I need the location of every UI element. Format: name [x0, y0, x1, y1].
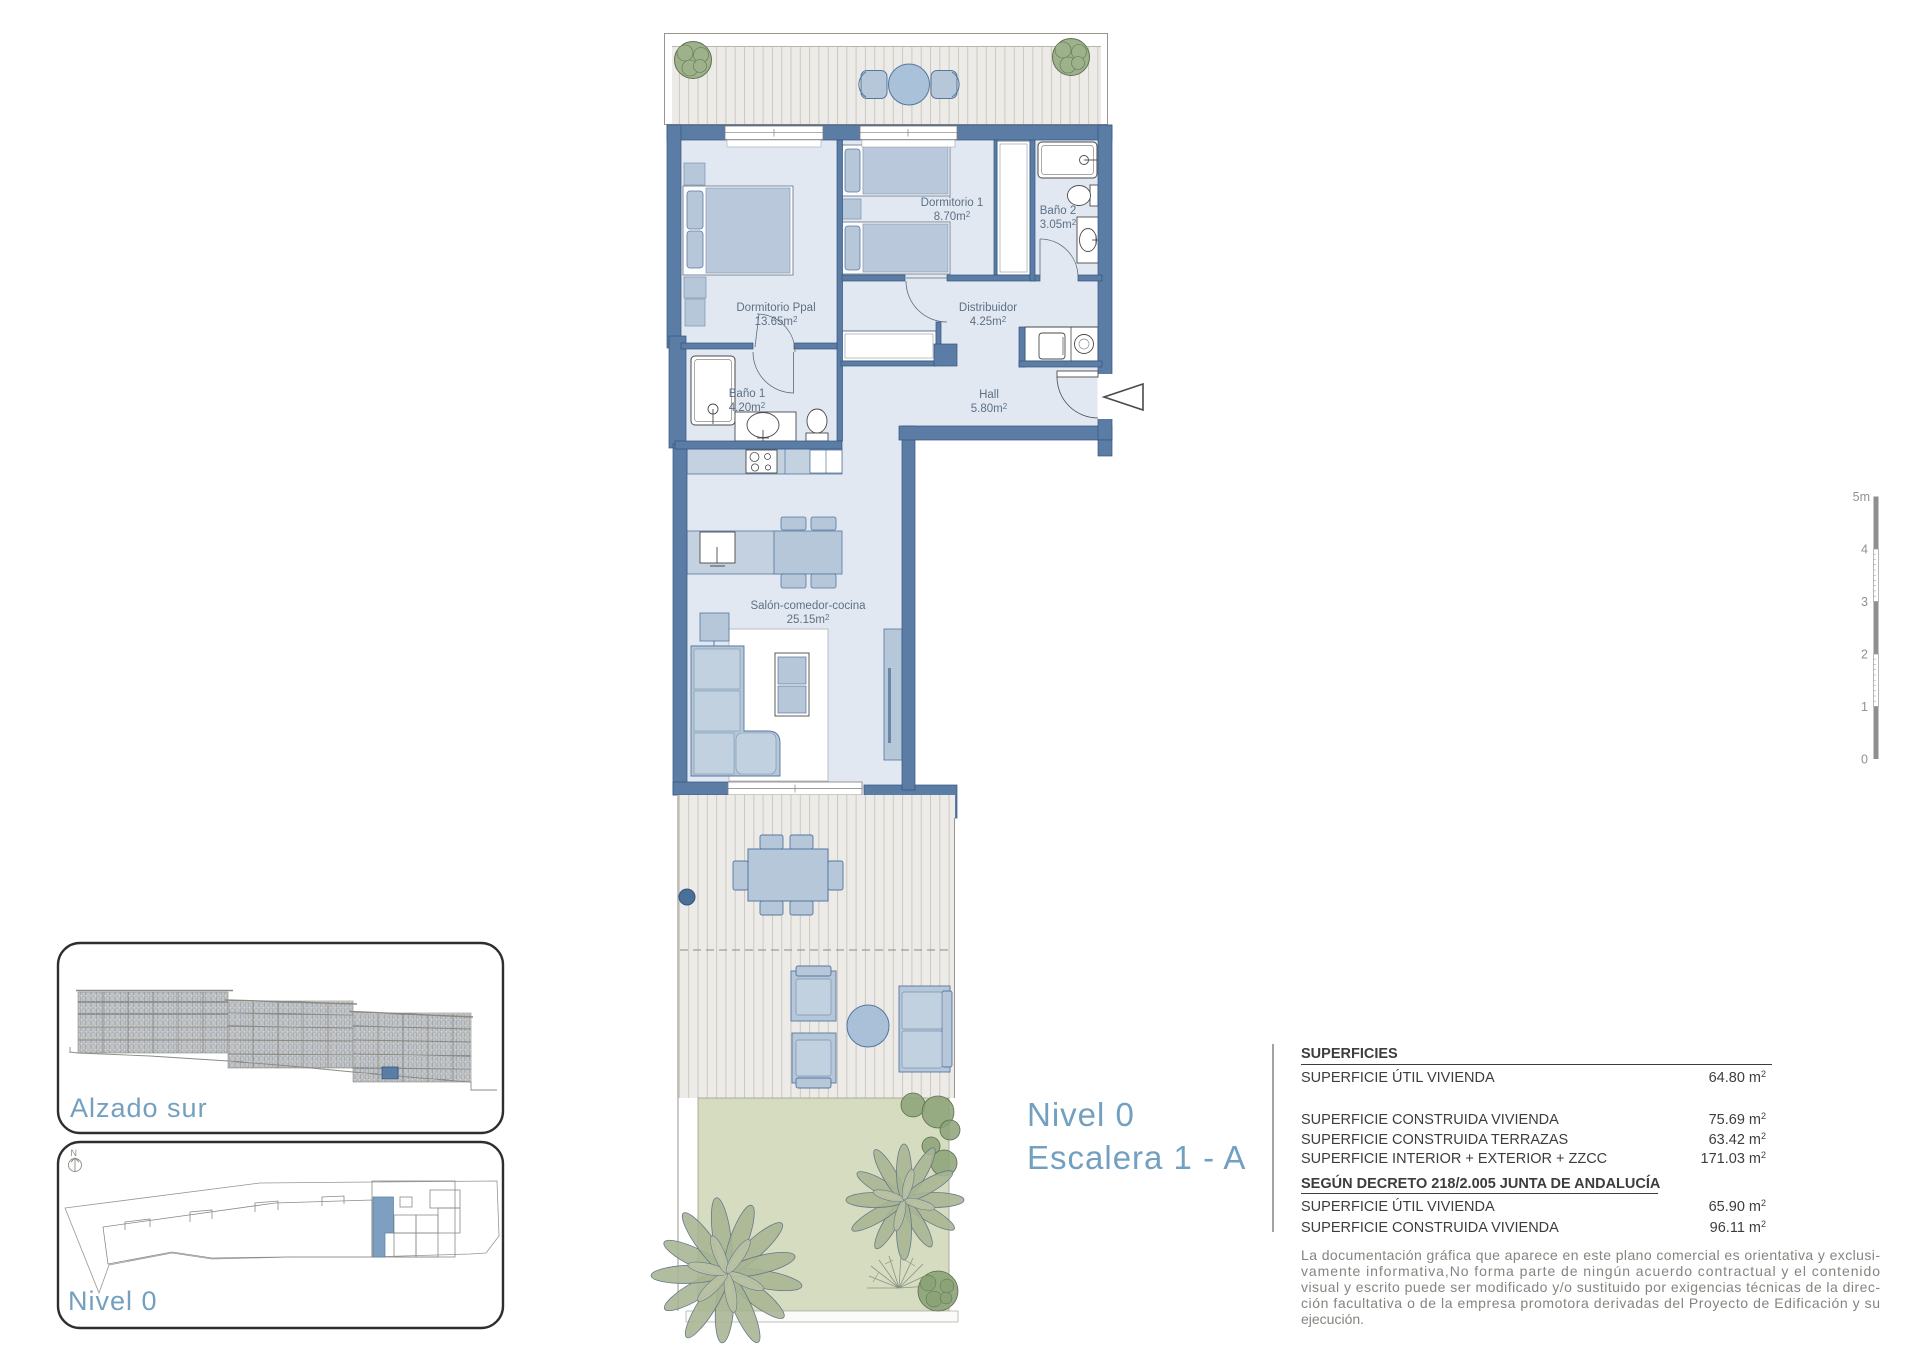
svg-text:SUPERFICIE ÚTIL VIVIENDA: SUPERFICIE ÚTIL VIVIENDA	[1301, 1069, 1495, 1086]
svg-text:SEGÚN DECRETO 218/2.005 JUNTA: SEGÚN DECRETO 218/2.005 JUNTA DE ANDALUC…	[1301, 1174, 1661, 1192]
svg-text:5m: 5m	[1853, 490, 1870, 504]
svg-text:25.15m2: 25.15m2	[787, 613, 830, 626]
svg-text:4: 4	[1861, 543, 1868, 557]
svg-text:SUPERFICIE CONSTRUIDA TERRAZAS: SUPERFICIE CONSTRUIDA TERRAZAS	[1301, 1132, 1568, 1148]
svg-text:ejecución.: ejecución.	[1301, 1311, 1364, 1327]
svg-text:65.90 m: 65.90 m	[1709, 1199, 1761, 1215]
svg-text:96.11 m: 96.11 m	[1710, 1220, 1761, 1236]
svg-text:8.70m2: 8.70m2	[934, 210, 971, 223]
svg-text:171.03 m: 171.03 m	[1701, 1151, 1761, 1167]
svg-text:visual y escrito puede ser mod: visual y escrito puede ser modificado y/…	[1301, 1279, 1880, 1295]
svg-text:1: 1	[1861, 700, 1868, 714]
svg-text:SUPERFICIES: SUPERFICIES	[1301, 1046, 1398, 1062]
svg-text:SUPERFICIE CONSTRUIDA VIVIENDA: SUPERFICIE CONSTRUIDA VIVIENDA	[1301, 1220, 1559, 1236]
svg-text:4.25m2: 4.25m2	[970, 315, 1007, 328]
svg-text:vamente informativa,No forma p: vamente informativa,No forma parte de ni…	[1301, 1263, 1880, 1279]
svg-text:Nivel 0: Nivel 0	[1027, 1096, 1135, 1133]
svg-text:SUPERFICIE INTERIOR + EXTERIOR: SUPERFICIE INTERIOR + EXTERIOR + ZZCC	[1301, 1151, 1607, 1167]
svg-text:Nivel 0: Nivel 0	[68, 1286, 158, 1316]
svg-text:Escalera 1 - A: Escalera 1 - A	[1027, 1139, 1246, 1176]
svg-text:Dormitorio Ppal: Dormitorio Ppal	[736, 302, 815, 314]
svg-text:La documentación gráfica que a: La documentación gráfica que aparece en …	[1301, 1247, 1880, 1263]
svg-text:13.65m2: 13.65m2	[755, 315, 798, 328]
svg-text:2: 2	[1761, 1219, 1766, 1229]
svg-text:2: 2	[1761, 1150, 1766, 1160]
svg-text:4.20m2: 4.20m2	[729, 401, 766, 414]
svg-text:63.42 m: 63.42 m	[1709, 1132, 1761, 1148]
svg-text:3.05m2: 3.05m2	[1040, 218, 1077, 231]
svg-text:2: 2	[1761, 1069, 1766, 1079]
svg-text:Distribuidor: Distribuidor	[959, 302, 1017, 314]
svg-text:Salón-comedor-cocina: Salón-comedor-cocina	[750, 600, 866, 612]
svg-text:2: 2	[1761, 1131, 1766, 1141]
svg-text:Dormitorio 1: Dormitorio 1	[921, 197, 984, 209]
svg-text:0: 0	[1861, 753, 1868, 767]
svg-text:Baño 1: Baño 1	[729, 388, 765, 400]
svg-text:ción facultativa o de la empre: ción facultativa o de la empresa promoto…	[1301, 1295, 1880, 1311]
svg-text:75.69 m: 75.69 m	[1709, 1112, 1761, 1128]
svg-text:3: 3	[1861, 595, 1868, 609]
svg-text:2: 2	[1761, 1198, 1766, 1208]
svg-text:2: 2	[1861, 648, 1868, 662]
svg-text:SUPERFICIE CONSTRUIDA VIVIENDA: SUPERFICIE CONSTRUIDA VIVIENDA	[1301, 1112, 1559, 1128]
svg-text:SUPERFICIE ÚTIL VIVIENDA: SUPERFICIE ÚTIL VIVIENDA	[1301, 1198, 1495, 1215]
svg-text:64.80 m: 64.80 m	[1709, 1070, 1761, 1086]
svg-text:5.80m2: 5.80m2	[971, 402, 1008, 415]
svg-text:Alzado sur: Alzado sur	[70, 1093, 208, 1123]
svg-text:Baño 2: Baño 2	[1040, 205, 1076, 217]
svg-text:N: N	[71, 1148, 78, 1158]
svg-text:Hall: Hall	[979, 389, 999, 401]
svg-text:2: 2	[1761, 1111, 1766, 1121]
